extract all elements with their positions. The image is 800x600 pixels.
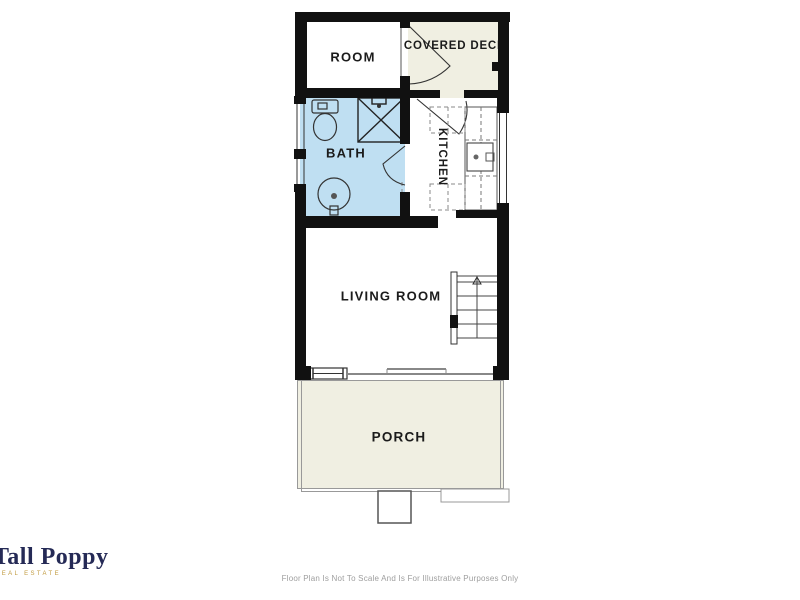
walls-overlay-svg bbox=[0, 0, 800, 600]
walls bbox=[294, 12, 510, 380]
disclaimer-text: Floor Plan Is Not To Scale And Is For Il… bbox=[0, 574, 800, 583]
floor-plan-page: ROOM COVERED DECK BATH KITCHEN LIVING RO… bbox=[0, 0, 800, 600]
brand-name: Tall Poppy bbox=[0, 545, 109, 569]
brand-logo: Tall Poppy REAL ESTATE bbox=[0, 545, 109, 577]
